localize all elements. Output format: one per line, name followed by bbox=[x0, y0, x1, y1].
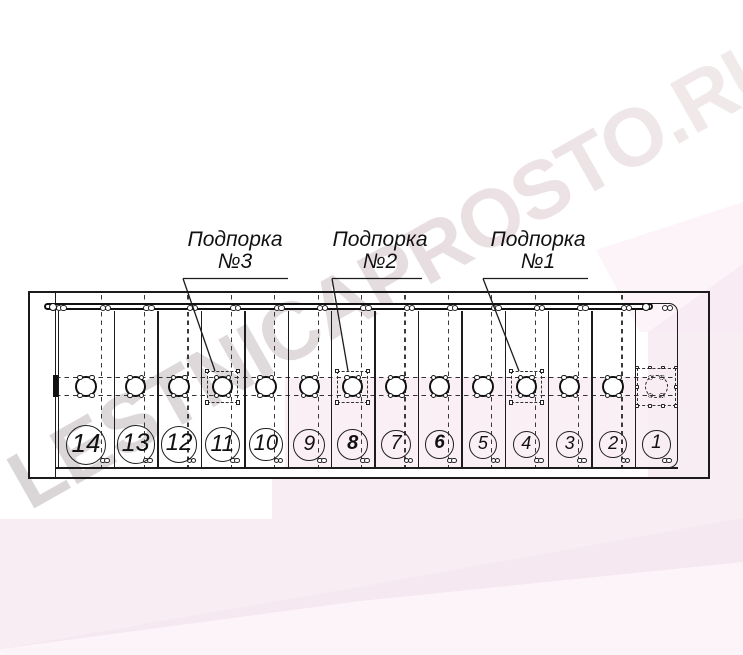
mount-plate-box bbox=[637, 368, 676, 407]
treads-bottom-edge bbox=[56, 467, 678, 468]
rail-clip-icon bbox=[447, 458, 455, 464]
step-number: 9 bbox=[303, 432, 315, 456]
rail-clip-icon bbox=[662, 458, 670, 464]
tread-edge bbox=[418, 311, 419, 468]
hole-lug-icon bbox=[182, 393, 188, 399]
tread-edge bbox=[548, 311, 549, 468]
hole-lug-icon bbox=[257, 393, 263, 399]
rail-clip-icon bbox=[100, 458, 108, 464]
rail-clip-icon bbox=[360, 305, 370, 311]
hole-lug-icon bbox=[388, 393, 394, 399]
hole-lug-icon bbox=[89, 393, 95, 399]
rail-clip-icon bbox=[143, 305, 153, 311]
support-box-corner-tick bbox=[236, 369, 241, 374]
hole-lug-icon bbox=[77, 393, 83, 399]
support-box-corner-tick bbox=[236, 400, 241, 405]
step-number: 13 bbox=[122, 429, 150, 458]
support-callout-3: Подпорка №3 bbox=[155, 229, 315, 273]
support-callout-2: Подпорка №2 bbox=[300, 229, 460, 273]
support-callout-1-name: Подпорка bbox=[458, 229, 618, 251]
rail-clip-icon bbox=[662, 305, 672, 311]
step-number-circle: 1 bbox=[642, 430, 671, 459]
rail-clip-icon bbox=[230, 305, 240, 311]
rail-clip-icon bbox=[621, 305, 631, 311]
rail-bar bbox=[44, 303, 653, 310]
support-box bbox=[207, 371, 238, 403]
step-number-circle: 8 bbox=[337, 429, 368, 460]
step-number: 4 bbox=[521, 433, 531, 454]
hole-lug-icon bbox=[443, 393, 449, 399]
support-box-corner-tick bbox=[335, 400, 340, 405]
step-number: 2 bbox=[608, 433, 618, 454]
support-box-corner-tick bbox=[205, 400, 210, 405]
step-number-circle: 13 bbox=[117, 425, 155, 463]
rail-clip-icon bbox=[577, 305, 587, 311]
hole-lug-icon bbox=[474, 393, 480, 399]
support-box-corner-tick bbox=[509, 369, 514, 374]
mount-plate-tick bbox=[661, 366, 665, 370]
tread-edge bbox=[114, 311, 115, 468]
step-number-circle: 6 bbox=[425, 430, 454, 459]
rail-clip-icon bbox=[56, 305, 66, 311]
rail-clip-icon bbox=[404, 458, 412, 464]
mount-plate-tick bbox=[648, 366, 652, 370]
tread-edge bbox=[288, 311, 289, 468]
step-number: 5 bbox=[478, 433, 488, 454]
step-number-circle: 7 bbox=[381, 430, 411, 460]
hole-lug-icon bbox=[605, 393, 611, 399]
step-number-circle: 5 bbox=[469, 431, 497, 459]
tread-edge bbox=[201, 311, 202, 468]
staircase-assembly-drawing: 1413121110987654321 bbox=[0, 0, 743, 655]
mount-plate-tick bbox=[635, 385, 639, 389]
rail-clip-icon bbox=[317, 458, 325, 464]
step-number-circle: 12 bbox=[161, 426, 198, 463]
rail-clip-icon bbox=[491, 305, 501, 311]
mount-plate-tick bbox=[674, 366, 678, 370]
step-number: 6 bbox=[434, 432, 445, 454]
screenshot-canvas: LESTNICAPROSTO.RU 1413121110987654321 По… bbox=[0, 0, 743, 655]
rail-clip-icon bbox=[404, 305, 414, 311]
rail-clip-icon bbox=[100, 305, 110, 311]
hole-lug-icon bbox=[561, 393, 567, 399]
rail-clip-icon bbox=[317, 305, 327, 311]
hole-lug-icon bbox=[399, 393, 405, 399]
mount-plate-tick bbox=[635, 404, 639, 408]
support-box-corner-tick bbox=[205, 369, 210, 374]
step-number-circle: 11 bbox=[205, 427, 240, 462]
support-box-corner-tick bbox=[335, 369, 340, 374]
step-number: 10 bbox=[254, 430, 278, 456]
step-number-circle: 9 bbox=[293, 429, 325, 461]
rail-clip-icon bbox=[534, 305, 544, 311]
tread-edge bbox=[331, 311, 332, 468]
rail-clip-icon bbox=[577, 458, 585, 464]
step-number: 14 bbox=[72, 428, 101, 459]
step-number: 3 bbox=[565, 433, 575, 454]
step-number-circle: 2 bbox=[599, 431, 627, 459]
support-box-corner-tick bbox=[540, 400, 545, 405]
tread-edge bbox=[58, 311, 59, 468]
support-callout-3-number: №3 bbox=[155, 251, 315, 273]
tread-edge bbox=[461, 311, 462, 468]
support-box bbox=[337, 371, 368, 403]
support-box-corner-tick bbox=[366, 400, 371, 405]
rail-clip-icon bbox=[360, 458, 368, 464]
mount-plate-tick bbox=[635, 366, 639, 370]
support-callout-1-number: №1 bbox=[458, 251, 618, 273]
rail-clip-icon bbox=[621, 458, 629, 464]
hole-lug-icon bbox=[312, 393, 318, 399]
rail-clip-icon bbox=[274, 305, 284, 311]
tread-edge bbox=[505, 311, 506, 468]
support-box-corner-tick bbox=[509, 400, 514, 405]
support-callout-1: Подпорка №1 bbox=[458, 229, 618, 273]
rail-clip-icon bbox=[491, 458, 499, 464]
step-number: 1 bbox=[651, 432, 662, 454]
support-callout-2-number: №2 bbox=[300, 251, 460, 273]
hole-lug-icon bbox=[171, 393, 177, 399]
rail-clip-icon bbox=[187, 305, 197, 311]
hole-lug-icon bbox=[89, 375, 95, 381]
mount-plate-tick bbox=[661, 404, 665, 408]
step-number: 8 bbox=[347, 432, 358, 455]
tread-edge bbox=[244, 311, 245, 468]
rail-clip-icon bbox=[534, 458, 542, 464]
tread-edge bbox=[374, 311, 375, 468]
support-box bbox=[511, 371, 542, 403]
step-number-circle: 10 bbox=[249, 428, 283, 462]
step-number: 7 bbox=[391, 432, 402, 455]
rail-clip-icon bbox=[447, 305, 457, 311]
hole-lug-icon bbox=[616, 393, 622, 399]
support-callout-3-name: Подпорка bbox=[155, 229, 315, 251]
hole-lug-icon bbox=[127, 393, 133, 399]
step-number: 12 bbox=[166, 429, 193, 457]
mount-plate-tick bbox=[648, 404, 652, 408]
tread-edge bbox=[591, 311, 592, 468]
support-box-corner-tick bbox=[540, 369, 545, 374]
mount-plate-tick bbox=[674, 404, 678, 408]
tread-edge bbox=[157, 311, 158, 468]
support-box-corner-tick bbox=[366, 369, 371, 374]
step-number: 11 bbox=[211, 430, 235, 457]
support-callout-2-name: Подпорка bbox=[300, 229, 460, 251]
mount-plate-tick bbox=[674, 385, 678, 389]
step-number-circle: 14 bbox=[66, 425, 106, 465]
